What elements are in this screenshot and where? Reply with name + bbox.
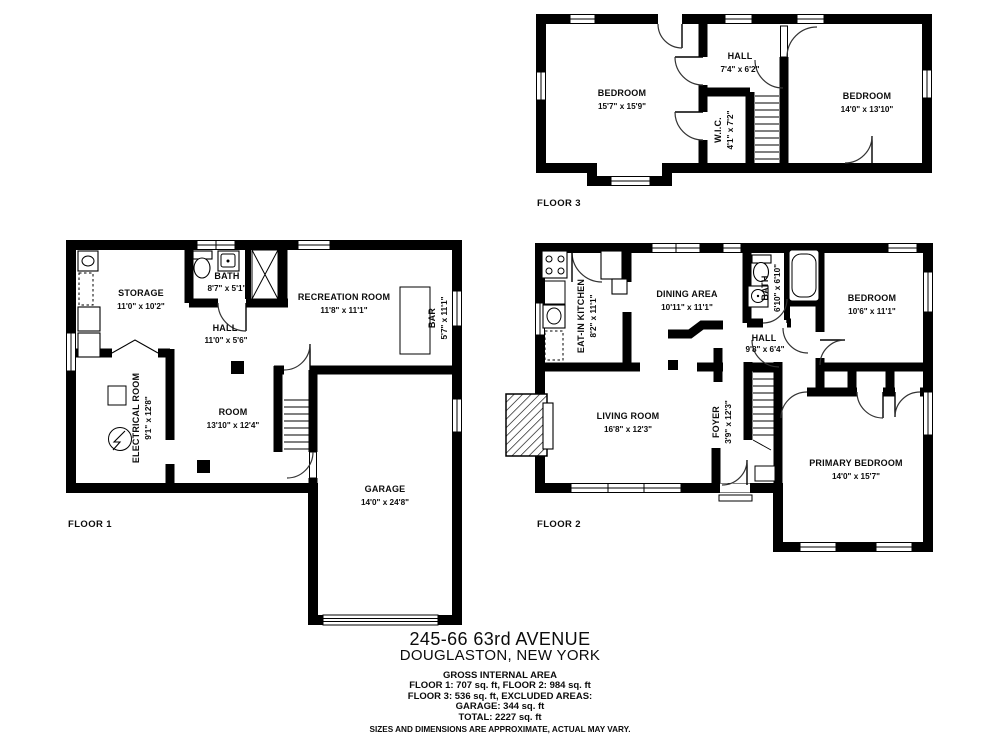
column xyxy=(668,360,678,370)
toilet-bowl xyxy=(194,258,210,278)
column xyxy=(197,460,210,473)
floor1-bifold-door xyxy=(112,340,158,353)
floor2-label: FLOOR 2 xyxy=(537,519,581,530)
floor2-foyer-name: FOYER xyxy=(711,406,721,438)
garage-door xyxy=(323,615,438,625)
appliance-2 xyxy=(78,333,100,357)
floor3-hall-name: HALL xyxy=(728,51,753,61)
floor2-bedroom-dims: 10'6" x 11'1" xyxy=(848,307,896,316)
floor3-plan: BEDROOM 15'7" x 15'9" HALL 7'4" x 6'2" W… xyxy=(537,14,932,209)
floor2-kitchen-name: EAT-IN KITCHEN xyxy=(576,279,586,353)
floor2-foyer-dims: 3'9" x 12'3" xyxy=(724,400,733,444)
floor1-bar-dims: 5'7" x 11'1" xyxy=(440,296,449,339)
floor2-interior-walls xyxy=(540,248,928,488)
floor1-label: FLOOR 1 xyxy=(68,519,112,530)
area-line-3: GARAGE: 344 sq. ft xyxy=(0,702,1000,713)
floor2-bath-dims: 6'10" x 6'10" xyxy=(773,264,782,312)
floor3-wic-name: W.I.C. xyxy=(713,117,723,143)
floor1-storage-dims: 11'0" x 10'2" xyxy=(117,302,165,311)
disclaimer: SIZES AND DIMENSIONS ARE APPROXIMATE, AC… xyxy=(0,725,1000,735)
floor2-primary-name: PRIMARY BEDROOM xyxy=(809,458,903,468)
cabinet-small xyxy=(612,279,627,294)
entry-closet xyxy=(755,466,775,481)
floor3-stairs xyxy=(755,96,779,159)
appliance-1 xyxy=(78,307,100,331)
bar-counter xyxy=(400,287,430,354)
counter xyxy=(543,281,565,304)
floor1-hall-name: HALL xyxy=(213,323,238,333)
floor3-wic-dims: 4'1" x 7'2" xyxy=(726,110,735,149)
floor3-doors xyxy=(658,14,872,163)
floor2-living-name: LIVING ROOM xyxy=(597,411,660,421)
floor2-hall-dims: 9'8" x 6'4" xyxy=(746,345,785,354)
floor3-label: FLOOR 3 xyxy=(537,198,581,209)
floor2-living-dims: 16'8" x 12'3" xyxy=(604,425,652,434)
laundry-sink xyxy=(78,251,98,271)
floor2-stairs xyxy=(753,372,774,450)
floor1-hall-dims: 11'0" x 5'6" xyxy=(204,336,247,345)
column xyxy=(231,361,244,374)
floor2-hall-name: HALL xyxy=(752,333,777,343)
floor1-garage-dims: 14'0" x 24'8" xyxy=(361,498,409,507)
floor-plan-page: BEDROOM 15'7" x 15'9" HALL 7'4" x 6'2" W… xyxy=(0,0,1000,750)
floor1-room-dims: 13'10" x 12'4" xyxy=(207,421,260,430)
floor2-windows xyxy=(536,244,933,552)
floor3-bedroom2-name: BEDROOM xyxy=(843,91,891,101)
electrical-panel xyxy=(108,386,126,405)
floor3-bedroom1-name: BEDROOM xyxy=(598,88,646,98)
cabinet xyxy=(601,251,622,279)
floor2-primary-dims: 14'0" x 15'7" xyxy=(832,472,880,481)
floor3-bedroom2-dims: 14'0" x 13'10" xyxy=(841,105,894,114)
address-line1: 245-66 63rd AVENUE xyxy=(0,631,1000,648)
floor1-recreation-name: RECREATION ROOM xyxy=(298,292,390,302)
floor3-bedroom1-dims: 15'7" x 15'9" xyxy=(598,102,646,111)
stove xyxy=(542,251,567,278)
floor2-bath-name: BATH xyxy=(760,275,770,300)
floor1-garage-name: GARAGE xyxy=(365,484,406,494)
floor2-dining-dims: 10'11" x 11'1" xyxy=(661,303,713,312)
electrical-symbol xyxy=(109,428,132,451)
floor1-bath-dims: 8'7" x 5'1" xyxy=(208,284,247,293)
entry-step xyxy=(719,495,752,501)
fireplace xyxy=(506,394,553,456)
floor1-bath-name: BATH xyxy=(214,271,239,281)
area-line-1: FLOOR 1: 707 sq. ft, FLOOR 2: 984 sq. ft xyxy=(0,681,1000,692)
floor3-hall-dims: 7'4" x 6'2" xyxy=(721,65,760,74)
area-line-4: TOTAL: 2227 sq. ft xyxy=(0,713,1000,724)
floor1-stairs xyxy=(284,400,311,449)
floor1-recreation-dims: 11'8" x 11'1" xyxy=(320,306,367,315)
floor1-storage-name: STORAGE xyxy=(118,288,164,298)
floor2-bedroom-name: BEDROOM xyxy=(848,293,896,303)
address-line2: DOUGLASTON, NEW YORK xyxy=(0,648,1000,664)
floor1-plan: STORAGE 11'0" x 10'2" BATH 8'7" x 5'1" H… xyxy=(67,241,462,626)
floor2-plan: EAT-IN KITCHEN 8'2" x 11'1" DINING AREA … xyxy=(506,244,933,552)
shelving xyxy=(79,273,93,305)
floor1-electrical-dims: 9'1" x 12'8" xyxy=(144,396,153,440)
title-block: 245-66 63rd AVENUE DOUGLASTON, NEW YORK … xyxy=(0,631,1000,735)
floor2-dining-name: DINING AREA xyxy=(656,289,718,299)
counter-dashed xyxy=(545,331,563,360)
toilet-tank xyxy=(752,255,771,263)
floor1-bar-name: BAR xyxy=(427,308,437,328)
floor1-windows xyxy=(67,241,462,626)
floor2-kitchen-dims: 8'2" x 11'1" xyxy=(589,294,598,337)
floor1-room-name: ROOM xyxy=(219,407,248,417)
floor1-electrical-name: ELECTRICAL ROOM xyxy=(131,373,141,463)
